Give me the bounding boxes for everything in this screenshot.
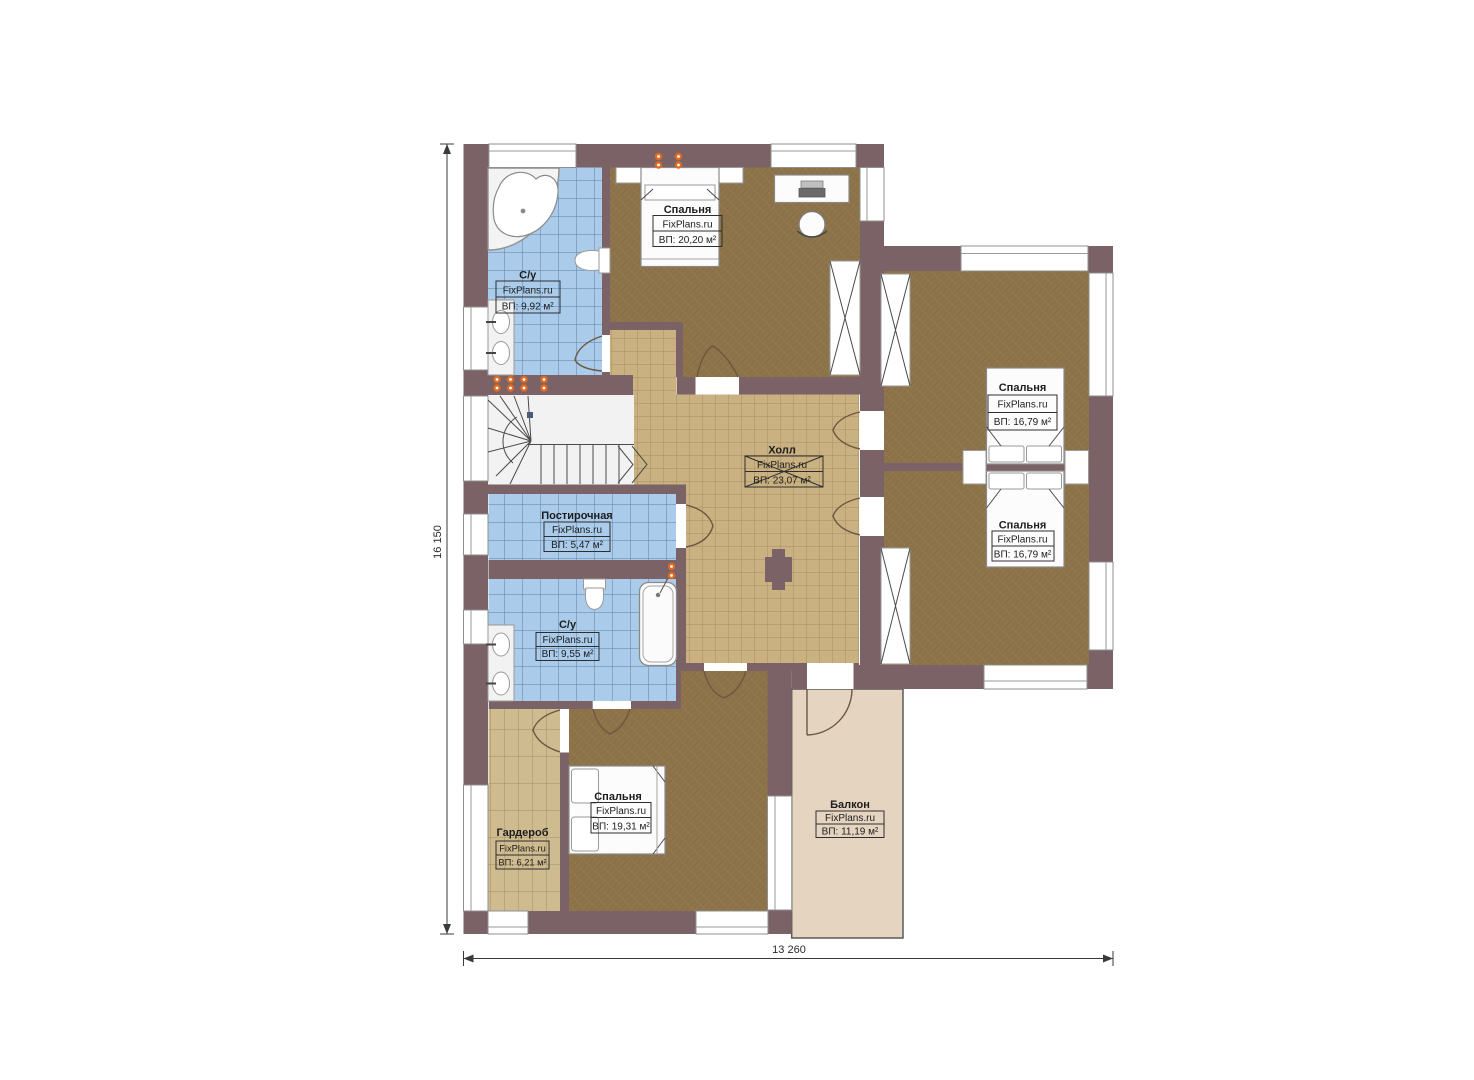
svg-text:Спальня: Спальня bbox=[999, 520, 1047, 532]
svg-text:FixPlans.ru: FixPlans.ru bbox=[662, 220, 712, 231]
svg-text:ВП: 19,31 м²: ВП: 19,31 м² bbox=[592, 822, 650, 833]
svg-text:13 260: 13 260 bbox=[772, 944, 806, 956]
svg-text:С/у: С/у bbox=[559, 619, 577, 631]
svg-text:С/у: С/у bbox=[519, 270, 537, 282]
svg-text:ВП: 5,47 м²: ВП: 5,47 м² bbox=[551, 540, 604, 551]
svg-text:ВП: 6,21 м²: ВП: 6,21 м² bbox=[498, 858, 546, 868]
svg-text:ВП: 20,20 м²: ВП: 20,20 м² bbox=[659, 235, 717, 246]
svg-text:Спальня: Спальня bbox=[999, 382, 1047, 394]
svg-text:ВП: 9,92 м²: ВП: 9,92 м² bbox=[502, 302, 555, 313]
svg-text:Постирочная: Постирочная bbox=[541, 510, 612, 522]
svg-text:ВП: 9,55 м²: ВП: 9,55 м² bbox=[542, 649, 595, 660]
svg-text:FixPlans.ru: FixPlans.ru bbox=[825, 813, 875, 824]
svg-text:FixPlans.ru: FixPlans.ru bbox=[997, 400, 1047, 411]
svg-text:Балкон: Балкон bbox=[830, 799, 870, 811]
svg-text:FixPlans.ru: FixPlans.ru bbox=[757, 460, 807, 471]
svg-text:FixPlans.ru: FixPlans.ru bbox=[503, 286, 553, 297]
svg-text:ВП: 16,79 м²: ВП: 16,79 м² bbox=[994, 550, 1052, 561]
svg-text:ВП: 23,07 м²: ВП: 23,07 м² bbox=[753, 476, 811, 487]
svg-text:Гардероб: Гардероб bbox=[497, 827, 549, 839]
svg-text:Спальня: Спальня bbox=[594, 791, 642, 803]
svg-text:FixPlans.ru: FixPlans.ru bbox=[499, 844, 546, 854]
svg-text:ВП: 11,19 м²: ВП: 11,19 м² bbox=[822, 827, 879, 838]
svg-text:FixPlans.ru: FixPlans.ru bbox=[596, 806, 646, 817]
svg-text:ВП: 16,79 м²: ВП: 16,79 м² bbox=[994, 417, 1052, 428]
svg-text:FixPlans.ru: FixPlans.ru bbox=[552, 525, 602, 536]
svg-text:FixPlans.ru: FixPlans.ru bbox=[542, 635, 592, 646]
svg-text:Холл: Холл bbox=[768, 445, 796, 457]
svg-text:16 150: 16 150 bbox=[432, 525, 444, 559]
svg-text:Спальня: Спальня bbox=[664, 204, 712, 216]
svg-text:FixPlans.ru: FixPlans.ru bbox=[997, 535, 1047, 546]
